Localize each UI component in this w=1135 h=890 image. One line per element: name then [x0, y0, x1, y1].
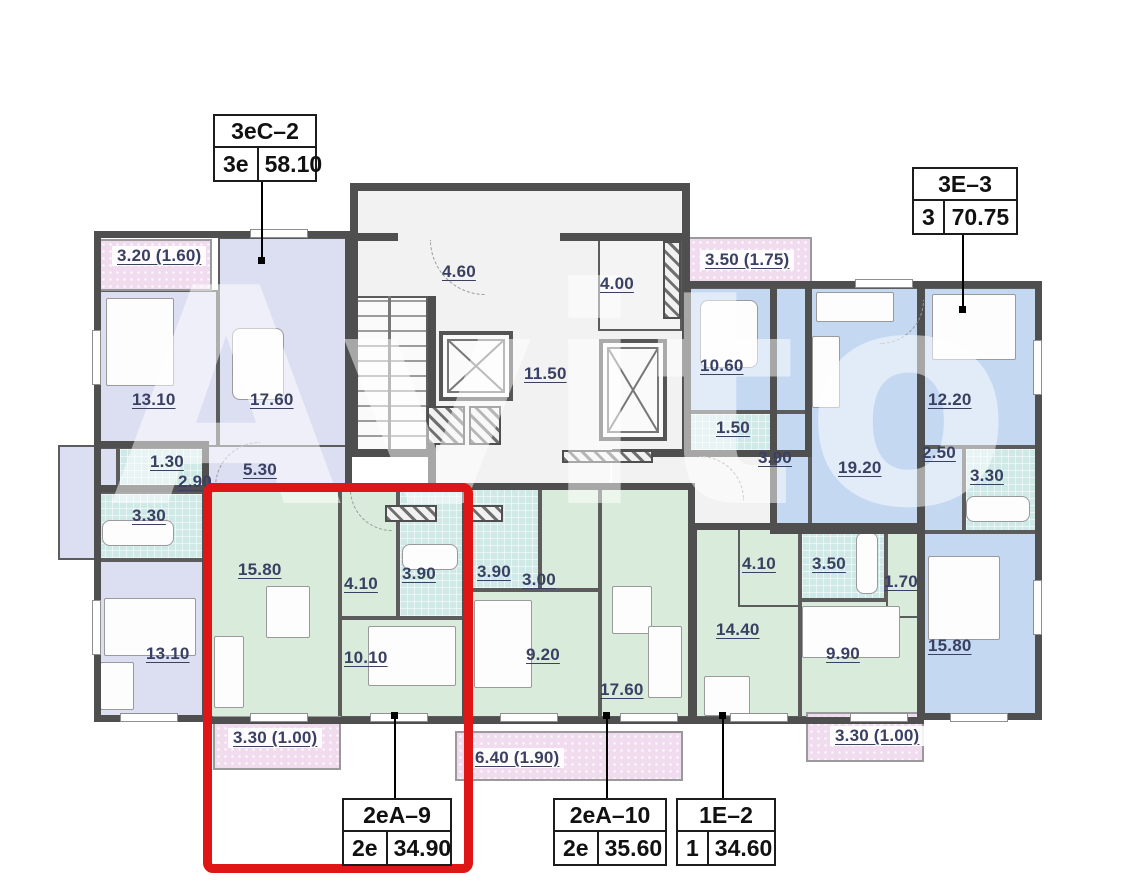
vestibule-wall	[560, 233, 690, 241]
apartment-area: 34.60	[709, 832, 779, 864]
apartment-name: 2еА–10	[555, 800, 665, 832]
room-label-lav-living: 17.60	[250, 390, 294, 410]
leader-line-2ea10	[606, 714, 608, 798]
corridor-wall-left	[428, 296, 436, 487]
room-label-lav-bedroom2: 13.10	[146, 644, 190, 664]
core-wall-left	[350, 183, 358, 457]
window	[250, 229, 308, 238]
window	[730, 713, 788, 722]
leader-dot	[719, 712, 726, 719]
apartment-name: 3Е–3	[914, 169, 1016, 201]
room-label-e2-wardrobe: 1.70	[884, 572, 918, 592]
vent-hatch	[562, 450, 653, 463]
room-label-blue-balcony: 3.50 (1.75)	[700, 250, 794, 270]
vestibule-wall-stub	[358, 233, 398, 241]
apartment-box-3es2: 3еС–2 3е 58.10	[213, 114, 317, 182]
room-label-lav-bedroom1: 13.10	[132, 390, 176, 410]
window	[850, 713, 908, 722]
room-label-core-room: 4.00	[600, 274, 634, 294]
bathtub	[966, 496, 1030, 522]
room-label-e2-balcony: 3.30 (1.00)	[830, 726, 924, 746]
apartment-box-1e2: 1Е–2 1 34.60	[676, 798, 776, 866]
floor-plan: Avito 3.20 (1.60) 13.10 17.60 1.30 5.30 …	[0, 0, 1135, 890]
apartment-area: 70.75	[945, 201, 1016, 233]
room-label-blue-bath: 3.30	[970, 466, 1004, 486]
leader-dot	[603, 712, 610, 719]
leader-line-3es2	[261, 172, 263, 262]
leader-line-3e3	[962, 225, 964, 311]
bed	[474, 600, 532, 688]
core-wall-top	[350, 183, 690, 191]
staircase-divider	[388, 296, 391, 452]
window	[1033, 340, 1042, 395]
room-label-core-lobby: 4.60	[442, 262, 476, 282]
room-label-blue-wc: 1.50	[716, 418, 750, 438]
leader-line-2ea9	[394, 714, 396, 798]
room-label-g10-bath: 3.90	[477, 562, 511, 582]
window	[92, 600, 101, 655]
shaft-hatch	[427, 406, 465, 445]
room-lav-strip	[96, 447, 118, 492]
apartment-box-2ea10: 2еА–10 2е 35.60	[553, 798, 667, 866]
shaft-hatch	[469, 406, 501, 445]
desk	[100, 662, 134, 710]
room-label-g10-hall: 3.00	[522, 570, 556, 590]
leader-line-1e2	[722, 714, 724, 798]
table	[704, 676, 750, 716]
room-label-g10-balcony: 6.40 (1.90)	[470, 748, 564, 768]
room-label-blue-bedroom1: 12.20	[928, 390, 972, 410]
window	[950, 713, 1008, 722]
apartment-rooms: 2е	[344, 832, 388, 864]
window	[620, 713, 678, 722]
apartment-area: 35.60	[599, 832, 669, 864]
room-label-core-corridor: 11.50	[524, 364, 567, 384]
apartment-rooms: 2е	[555, 832, 599, 864]
room-label-blue-bedroom2: 15.80	[928, 636, 972, 656]
room-label-lav-bath: 3.30	[132, 506, 166, 526]
leader-dot	[391, 712, 398, 719]
bathtub	[856, 532, 878, 594]
room-label-blue-hall2: 2.50	[922, 443, 956, 463]
window	[1033, 580, 1042, 635]
room-label-e2-hall: 4.10	[742, 554, 776, 574]
apartment-rooms: 3	[914, 201, 945, 233]
apartment-box-2ea9: 2еА–9 2е 34.90	[342, 798, 452, 866]
elevator-icon	[598, 338, 668, 442]
room-label-lav-wc: 1.30	[150, 452, 184, 472]
window	[92, 330, 101, 385]
bed	[106, 298, 174, 386]
core-wall-bottom-left	[350, 449, 436, 457]
room-label-e2-kitchen: 14.40	[716, 620, 760, 640]
window	[120, 713, 178, 722]
room-label-g10-bedroom: 9.20	[526, 645, 560, 665]
room-label-lav-hall: 5.30	[243, 460, 277, 480]
room-label-lav-balcony: 3.20 (1.60)	[112, 246, 206, 266]
apartment-name: 1Е–2	[678, 800, 774, 832]
apartment-area: 58.10	[259, 148, 329, 180]
window	[500, 713, 558, 722]
sofa	[648, 626, 682, 698]
window	[855, 279, 913, 288]
sofa	[812, 336, 840, 408]
apartment-rooms: 1	[678, 832, 709, 864]
room-label-blue-hall: 3.90	[758, 448, 792, 468]
room-label-e2-bedroom: 9.90	[826, 644, 860, 664]
leader-dot	[258, 257, 265, 264]
room-label-blue-kitchen: 10.60	[700, 356, 744, 376]
room-label-g10-kitchen: 17.60	[600, 680, 644, 700]
shaft-hatch	[663, 241, 681, 319]
table	[612, 586, 652, 634]
bed	[932, 294, 1016, 360]
apartment-box-3e3: 3Е–3 3 70.75	[912, 167, 1018, 235]
apartment-area: 34.90	[388, 832, 458, 864]
apartment-name: 2еА–9	[344, 800, 450, 832]
bed	[928, 556, 1000, 640]
apartment-rooms: 3е	[215, 148, 259, 180]
room-lav-appendix	[58, 445, 98, 560]
room-label-blue-living: 19.20	[838, 458, 882, 478]
apartment-name: 3еС–2	[215, 116, 315, 148]
core-wall-right	[682, 183, 690, 455]
room-blue-hall	[772, 412, 810, 532]
elevator-icon	[438, 330, 514, 402]
room-label-e2-bath: 3.50	[812, 554, 846, 574]
leader-dot	[959, 306, 966, 313]
